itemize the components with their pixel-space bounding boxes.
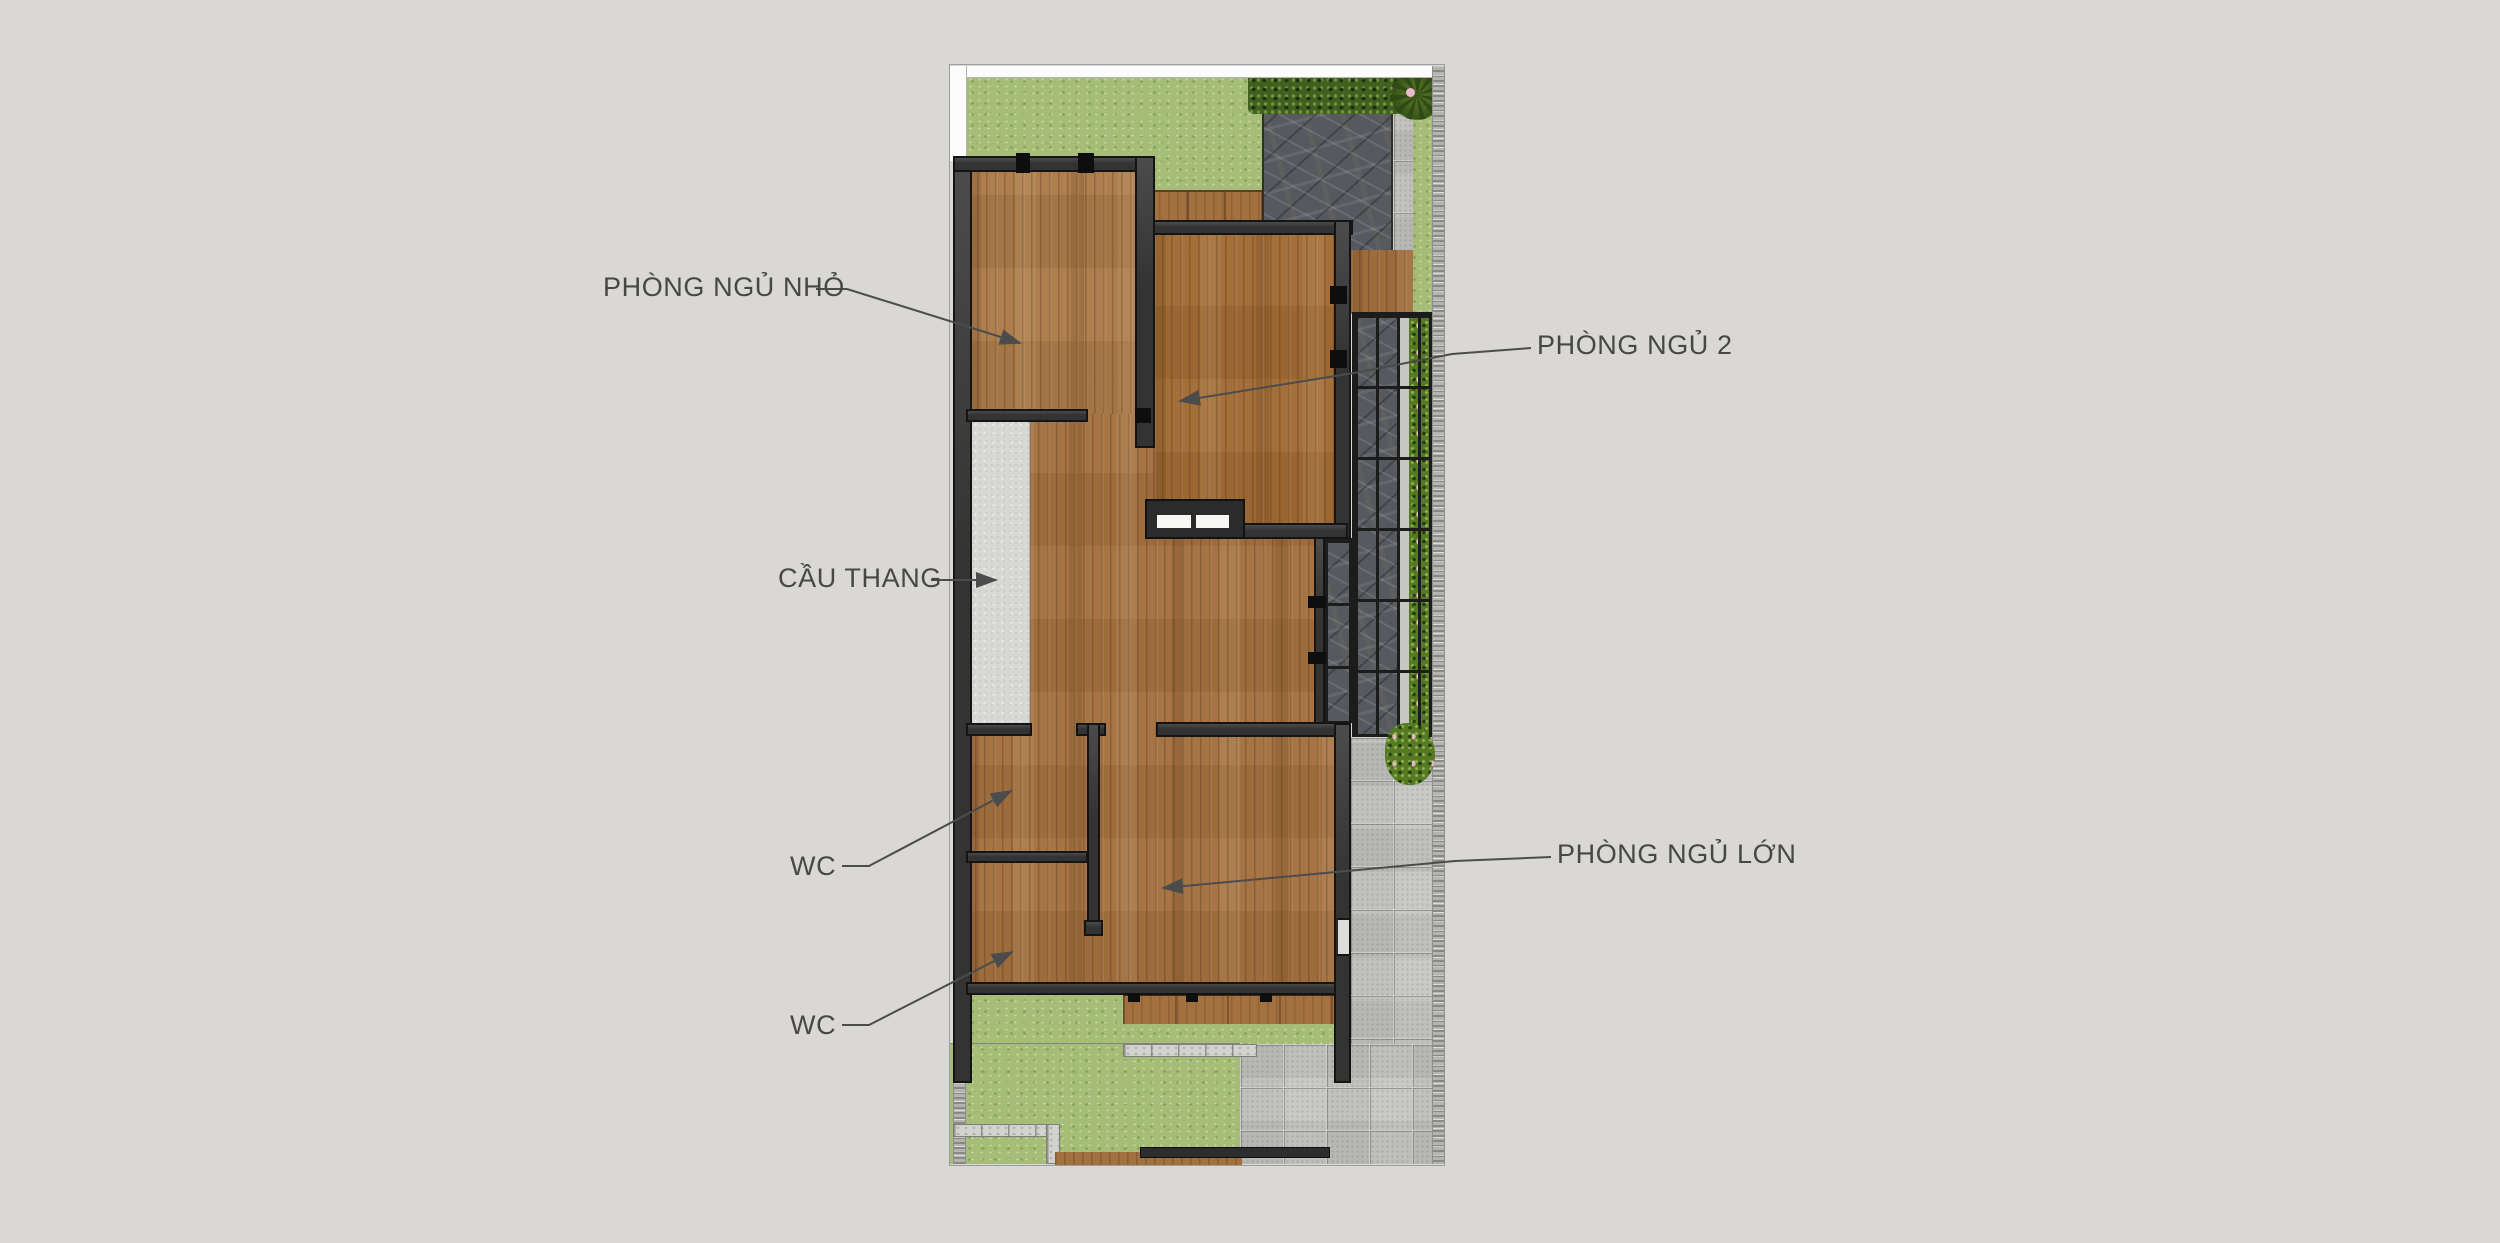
room-label-large-bedroom: PHÒNG NGỦ LỚN	[1557, 840, 1796, 870]
room-label-wc-upper: WC	[790, 852, 836, 882]
stone-path-south	[1123, 1044, 1257, 1057]
pergola-planter-wide	[1323, 538, 1354, 723]
window-nub	[1330, 286, 1347, 304]
wall-corridor-screen	[1314, 537, 1325, 725]
window-nub	[1308, 652, 1326, 664]
wall-wc-partition	[1087, 723, 1100, 928]
bedroom2-floor	[1153, 232, 1335, 525]
pergola-glass-grid	[1352, 312, 1432, 737]
wall-smallbedroom-bottom	[966, 409, 1088, 422]
shrub-south	[1385, 723, 1435, 785]
boundary-strip-left	[950, 66, 967, 161]
glass-door-gap	[1336, 918, 1349, 956]
window-nub	[1078, 153, 1094, 173]
window-nub	[1308, 596, 1326, 608]
small-bedroom-floor	[968, 168, 1137, 414]
stone-path-left	[953, 1124, 1053, 1137]
wall-right-upper	[1334, 220, 1351, 539]
room-label-wc-lower: WC	[790, 1011, 836, 1041]
wall-left	[953, 158, 972, 1083]
room-label-small-bedroom: PHÒNG NGỦ NHỎ	[603, 273, 845, 303]
window-nub	[1330, 350, 1347, 368]
boundary-brick-wall	[1432, 66, 1445, 1164]
room-label-staircase: CẦU THANG	[778, 564, 942, 594]
wall-bottom	[966, 982, 1338, 995]
wall-wc-top-a	[966, 723, 1032, 736]
staircase	[971, 420, 1030, 723]
window-unit-pane-right	[1196, 515, 1229, 528]
wall-bedroom2-top	[1153, 220, 1353, 235]
wall-wc-partition-cap	[1084, 920, 1103, 936]
wall-top	[953, 156, 1155, 172]
pergola-glass-grid2	[1323, 538, 1354, 723]
window-unit-pane-left	[1157, 515, 1191, 528]
hedge	[1248, 76, 1412, 114]
wall-bedroom2-bottom	[1228, 523, 1348, 539]
lawn-back-yard	[950, 1044, 1240, 1164]
room-label-bedroom2: PHÒNG NGỦ 2	[1537, 331, 1733, 361]
deck-track-nub	[1260, 993, 1272, 1002]
window-nub	[1016, 153, 1030, 173]
pergola-planter	[1352, 312, 1432, 737]
door-hinge-nub	[1135, 408, 1151, 423]
wall-smallbedroom-right	[1135, 156, 1155, 448]
bench	[1140, 1147, 1330, 1158]
boundary-strip-top	[950, 66, 1444, 78]
floor-plan-canvas: PHÒNG NGỦ NHỎ PHÒNG NGỦ 2 CẦU THANG WC P…	[0, 0, 2500, 1243]
wall-largebedroom-top	[1156, 722, 1348, 737]
flower-dot	[1406, 88, 1415, 97]
deck-north-east	[1350, 250, 1413, 314]
deck-track-nub	[1186, 993, 1198, 1002]
deck-south	[1123, 994, 1335, 1024]
wall-right-lower	[1334, 723, 1351, 1083]
deck-track-nub	[1128, 993, 1140, 1002]
patio-paver-border	[1393, 108, 1413, 260]
wall-wc-divider	[966, 851, 1088, 863]
